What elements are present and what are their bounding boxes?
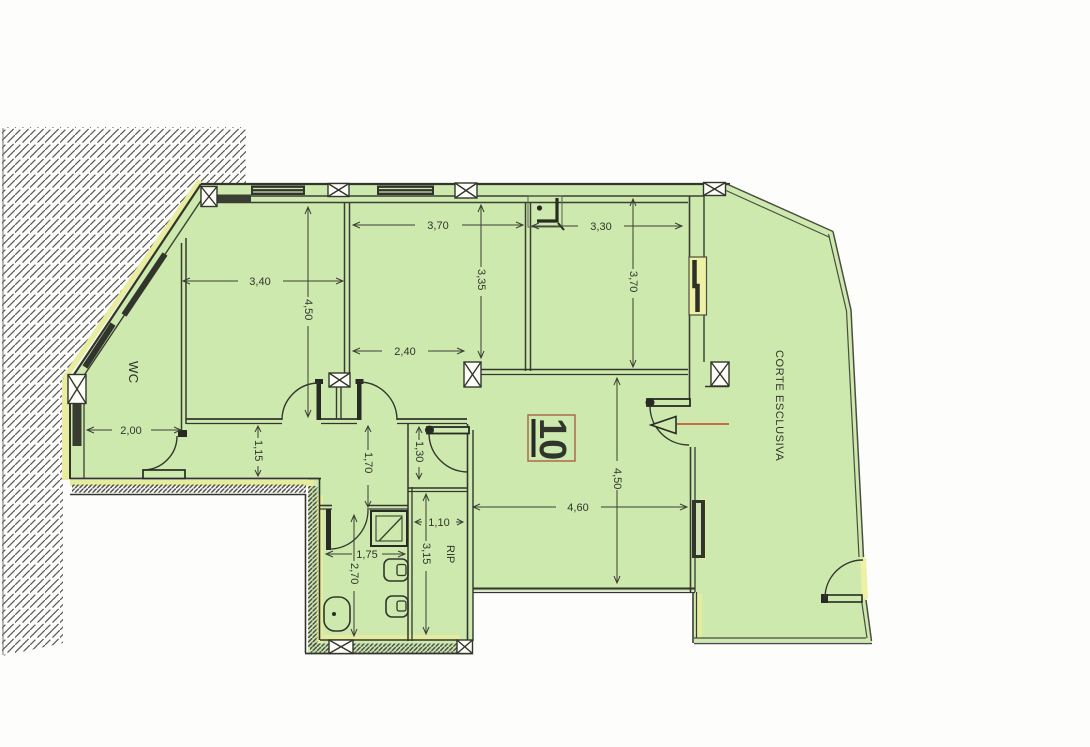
svg-text:CORTE ESCLUSIVA: CORTE ESCLUSIVA bbox=[773, 350, 785, 461]
svg-text:3,70: 3,70 bbox=[427, 220, 448, 232]
svg-text:3,40: 3,40 bbox=[249, 276, 270, 288]
svg-text:3,15: 3,15 bbox=[420, 543, 432, 564]
svg-text:4,50: 4,50 bbox=[611, 468, 623, 489]
svg-text:2,70: 2,70 bbox=[348, 563, 360, 584]
svg-text:3,30: 3,30 bbox=[590, 221, 611, 233]
svg-text:1,75: 1,75 bbox=[356, 549, 377, 561]
svg-text:1,15: 1,15 bbox=[252, 440, 264, 461]
svg-text:3,70: 3,70 bbox=[627, 271, 639, 292]
svg-text:3,35: 3,35 bbox=[475, 269, 487, 290]
svg-text:2,00: 2,00 bbox=[120, 425, 141, 437]
svg-text:WC: WC bbox=[126, 361, 141, 384]
svg-text:4,60: 4,60 bbox=[567, 502, 588, 514]
svg-text:1,10: 1,10 bbox=[428, 517, 449, 529]
svg-text:RIP: RIP bbox=[444, 545, 456, 563]
svg-text:1,70: 1,70 bbox=[362, 452, 374, 473]
svg-text:2,40: 2,40 bbox=[394, 346, 415, 358]
svg-text:1,30: 1,30 bbox=[413, 441, 425, 462]
svg-text:10: 10 bbox=[531, 418, 573, 460]
svg-text:4,50: 4,50 bbox=[302, 299, 314, 320]
